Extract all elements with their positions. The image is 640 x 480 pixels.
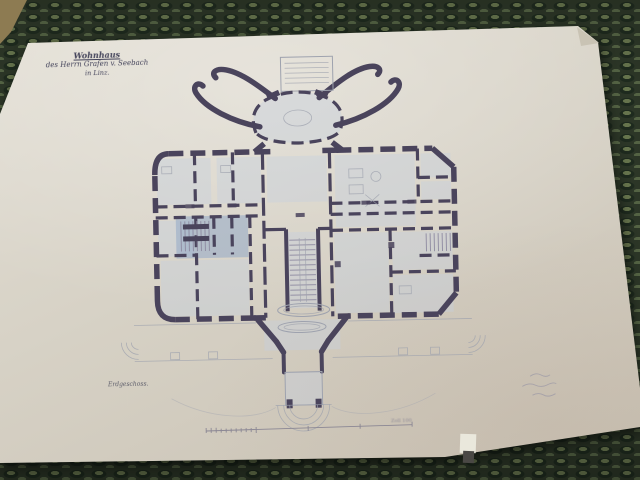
- floor-label: Erdgeschoss.: [108, 381, 149, 389]
- photo-scene: Wohnhaus des Herrn Grafen v. Seebach in …: [0, 0, 640, 480]
- pencil-inscription: [522, 373, 556, 396]
- title-block: Wohnhaus des Herrn Grafen v. Seebach in …: [35, 48, 160, 78]
- paper-tab-shadow: [463, 451, 474, 463]
- drawing-sheet-wrap: Wohnhaus des Herrn Grafen v. Seebach in …: [0, 0, 640, 480]
- entrance-porch: [280, 56, 333, 91]
- drawing-sheet: Wohnhaus des Herrn Grafen v. Seebach in …: [0, 0, 640, 480]
- scale-bar: [206, 422, 412, 434]
- scale-note: Zoll 100: [391, 418, 412, 424]
